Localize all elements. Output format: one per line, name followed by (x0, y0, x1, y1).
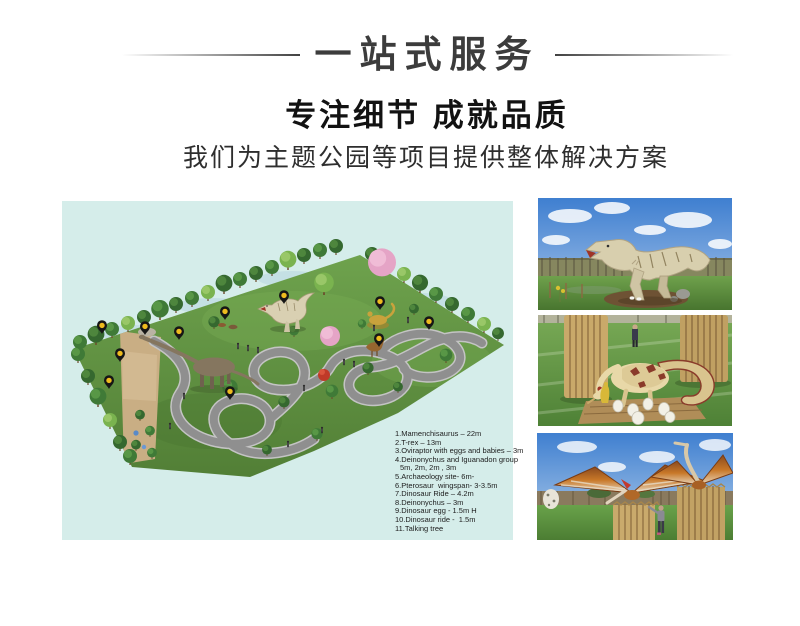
pink-blossom-tree (368, 248, 396, 276)
palisade-tower-right (677, 484, 725, 540)
pterosaur-models-photo (537, 433, 733, 540)
map-legend: 1.Mamenchisaurus – 22m2.T-rex – 13m3.Ovi… (395, 430, 513, 533)
divider-line-right (555, 54, 733, 56)
page: 一站式服务 专注细节 成就品质 我们为主题公园等项目提供整体解决方案 (0, 0, 800, 626)
t-rex-model-photo (538, 198, 732, 310)
spotted-egg (543, 489, 559, 509)
banner-title: 一站式服务 (315, 36, 540, 73)
headline: 专注细节 成就品质 (27, 90, 800, 135)
subheadline: 我们为主题公园等项目提供整体解决方案 (26, 138, 800, 174)
oviraptor-with-eggs-photo (538, 315, 732, 426)
divider-line-left (122, 54, 300, 56)
banner-title-row: 一站式服务 (27, 36, 800, 73)
pink-blossom-tree (320, 326, 340, 346)
legend-line: 11.Talking tree (395, 525, 513, 534)
park-map-image: 1.Mamenchisaurus – 22m2.T-rex – 13m3.Ovi… (62, 201, 513, 540)
